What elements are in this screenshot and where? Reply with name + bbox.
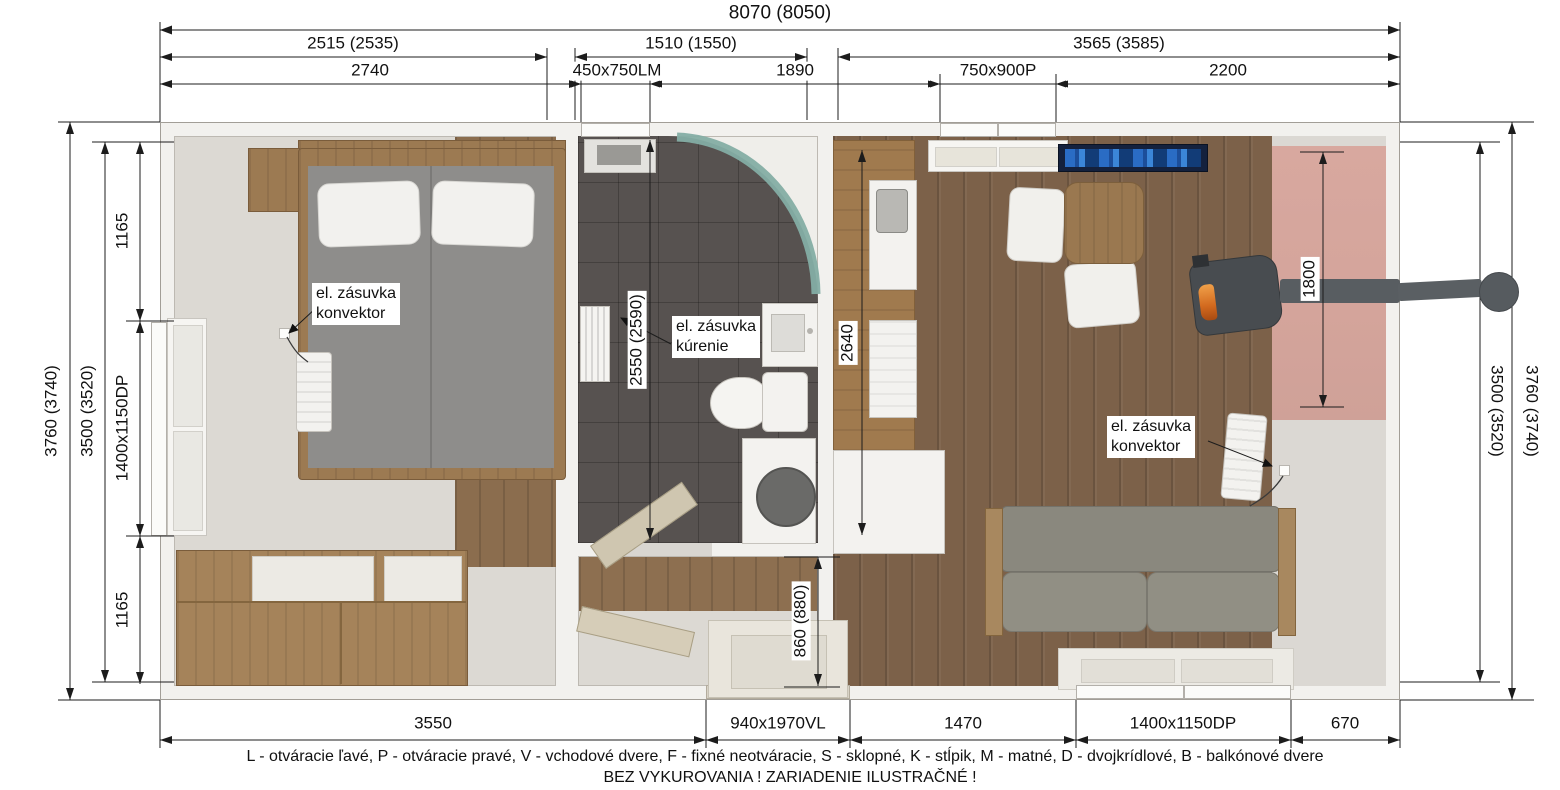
dim-right-outer: 3760 (3740): [1522, 362, 1541, 460]
dim-bottom-4: 670: [1328, 715, 1362, 734]
dim-left-seg-0: 1165: [114, 210, 133, 253]
dim-kitchen-run: 2640: [839, 321, 858, 365]
dim-total-width: 8070 (8050): [726, 4, 834, 25]
floor-plan: 8070 (8050) 2515 (2535) 1510 (1550) 3565…: [0, 0, 1560, 790]
legend-note: BEZ VYKUROVANIA ! ZARIADENIE ILUSTRAČNÉ …: [603, 769, 976, 787]
dim-left-inner: 3500 (3520): [79, 362, 98, 460]
dim-top-row2-2: 3565 (3585): [1070, 35, 1168, 54]
dim-left-outer: 3760 (3740): [43, 362, 62, 460]
dim-left-seg-1: 1400x1150DP: [114, 372, 133, 485]
dim-bottom-2: 1470: [941, 715, 985, 734]
dim-top-row2-0: 2515 (2535): [304, 35, 402, 54]
socket-cable: [287, 337, 308, 362]
dim-top-row3-1: 450x750LM: [570, 62, 665, 81]
legend-abbreviations: L - otváracie ľavé, P - otváracie pravé,…: [246, 748, 1323, 766]
dim-accent-wall: 1800: [1301, 257, 1320, 301]
dim-top-row3-4: 2200: [1206, 62, 1250, 81]
dim-bottom-1: 940x1970VL: [727, 715, 828, 734]
dim-left-seg-2: 1165: [114, 589, 133, 632]
dim-top-row3-2: 1890: [773, 62, 817, 81]
flue-end-cap: [1479, 272, 1519, 312]
label-socket-convector-bedroom: el. zásuvka konvektor: [312, 283, 400, 325]
dim-top-row2-1: 1510 (1550): [642, 35, 740, 54]
leader-arrow-living-socket: [1208, 441, 1272, 466]
label-socket-heating-bathroom: el. zásuvka kúrenie: [672, 316, 760, 358]
dim-top-row3-0: 2740: [348, 62, 392, 81]
dim-bottom-0: 3550: [411, 715, 455, 734]
dim-right-inner: 3500 (3520): [1487, 362, 1506, 460]
dim-bottom-3: 1400x1150DP: [1127, 715, 1240, 734]
shower-glass-arc: [677, 137, 816, 294]
socket-cable: [1250, 476, 1283, 506]
dimension-overlay: [0, 0, 1560, 790]
dim-entry-width: 860 (880): [792, 582, 811, 661]
dim-bathroom-depth: 2550 (2590): [628, 291, 647, 389]
label-socket-convector-living: el. zásuvka konvektor: [1107, 416, 1195, 458]
dim-top-row3-3: 750x900P: [957, 62, 1040, 81]
